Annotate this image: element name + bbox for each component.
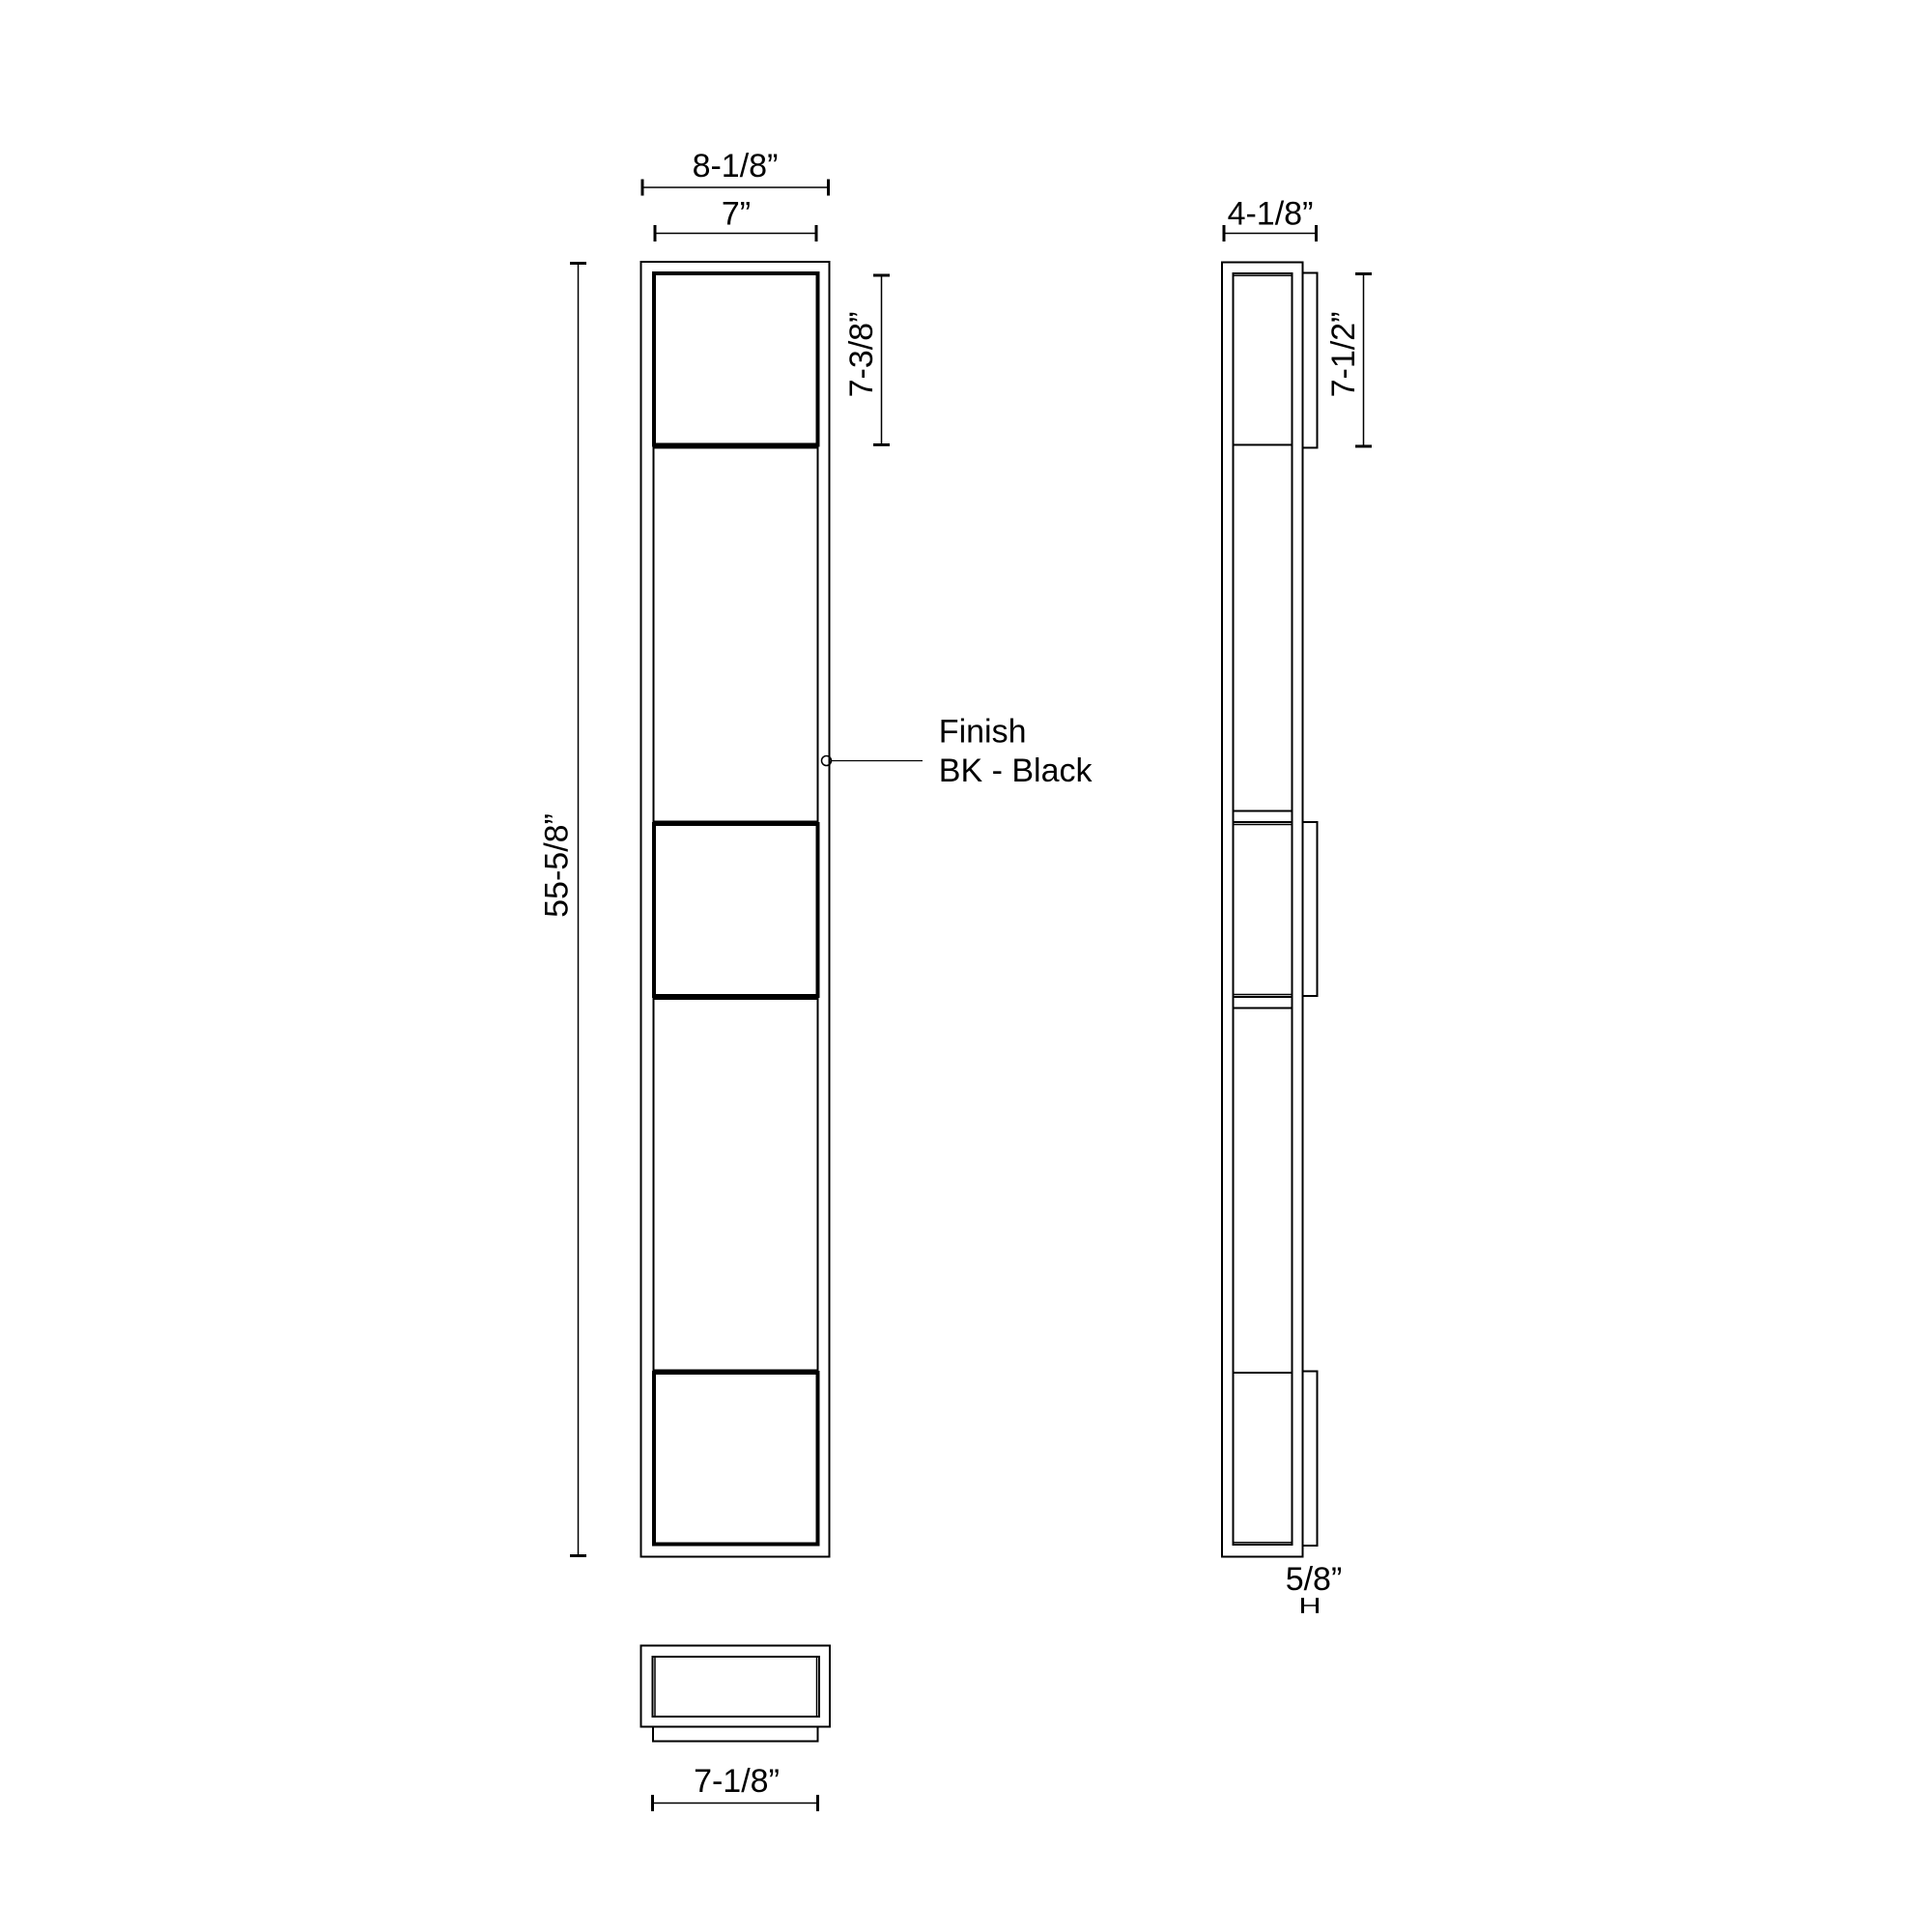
svg-text:4-1/8”: 4-1/8” xyxy=(1228,196,1314,233)
svg-text:7-1/2”: 7-1/2” xyxy=(1325,312,1362,398)
svg-text:BK - Black: BK - Black xyxy=(939,753,1094,789)
svg-text:55-5/8”: 55-5/8” xyxy=(539,813,576,918)
svg-text:7-1/8”: 7-1/8” xyxy=(694,1763,780,1800)
svg-text:7-3/8”: 7-3/8” xyxy=(843,312,880,398)
svg-text:Finish: Finish xyxy=(939,714,1027,751)
svg-text:5/8”: 5/8” xyxy=(1286,1561,1343,1598)
svg-text:8-1/8”: 8-1/8” xyxy=(693,148,779,185)
svg-text:7”: 7” xyxy=(722,196,751,233)
